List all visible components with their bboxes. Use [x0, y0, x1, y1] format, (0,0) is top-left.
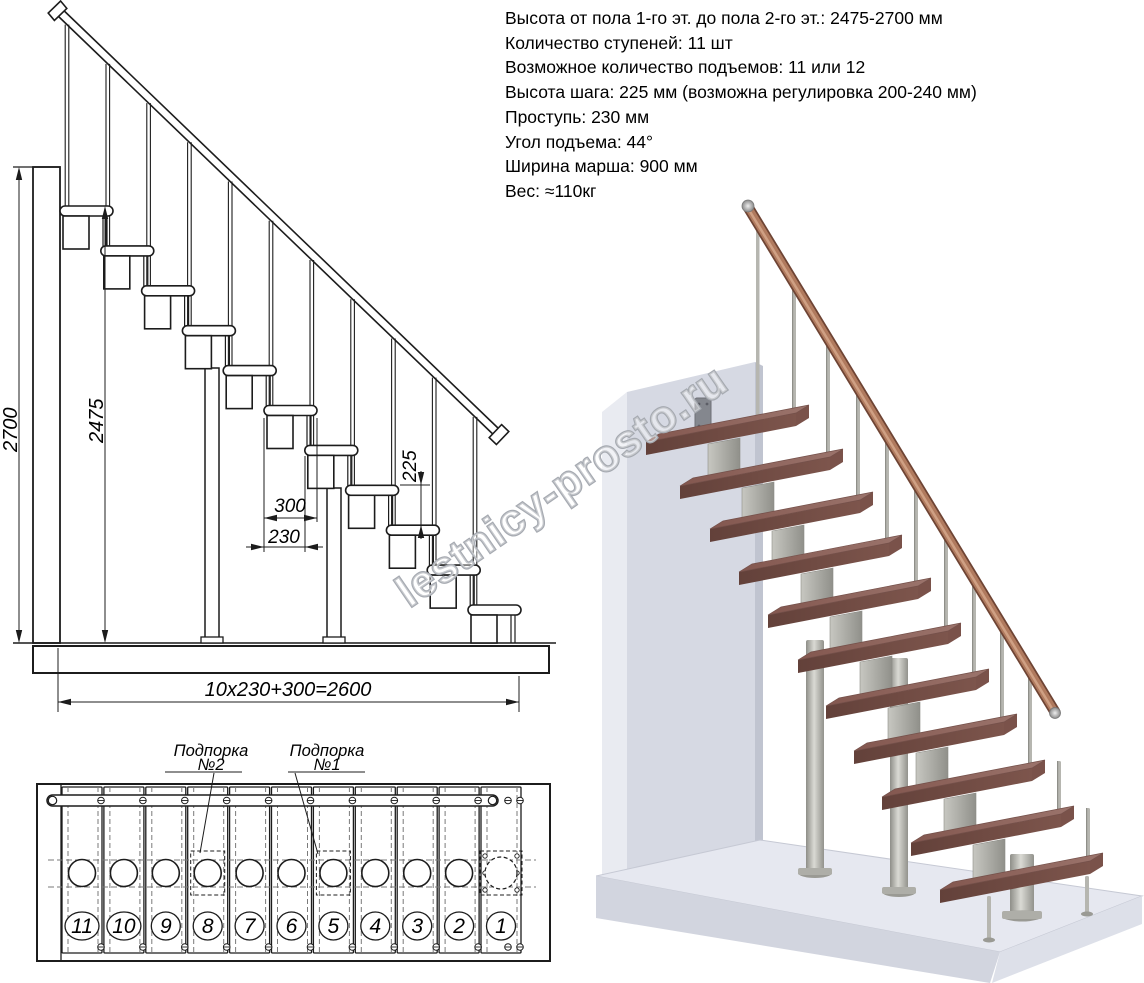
plan-step-number: 4: [369, 915, 381, 938]
plan-drawing: Подпорка №2 Подпорка №1 1110987654321: [0, 730, 580, 983]
plan-step-number: 8: [202, 915, 214, 938]
staircase-3d-render: [596, 190, 1144, 983]
plan-step-numbers: 1110987654321: [65, 912, 516, 940]
dim-tread-depth: 300: [274, 496, 306, 517]
plan-step-number: 7: [244, 915, 257, 938]
spec-line-step-height: Высота шага: 225 мм (возможна регулировк…: [505, 80, 1135, 105]
plan-step-number: 1: [495, 915, 507, 938]
page-canvas: 2700 2475 300 230 225 10x230+300=2600 Вы…: [0, 0, 1144, 983]
spec-line-angle: Угол подъема: 44°: [505, 130, 1135, 155]
elevation-drawing: 2700 2475 300 230 225 10x230+300=2600: [0, 0, 580, 745]
spec-line-rise-count: Возможное количество подъемов: 11 или 12: [505, 55, 1135, 80]
plan-step-number: 10: [112, 915, 136, 938]
plan-step-number: 3: [411, 915, 423, 938]
render3d-geometry: [596, 200, 1142, 983]
elevation-geometry: [13, 1, 556, 712]
spec-line-tread: Проступь: 230 мм: [505, 105, 1135, 130]
plan-step-number: 2: [452, 915, 465, 938]
dim-flight-height: 2475: [86, 398, 108, 444]
plan-step-number: 9: [160, 915, 172, 938]
plan-step-number: 5: [328, 915, 340, 938]
specs-block: Высота от пола 1-го эт. до пола 2-го эт.…: [505, 6, 1135, 204]
dim-step-run: 230: [267, 527, 300, 548]
support2-label-line2: №2: [197, 756, 224, 774]
dim-total-height: 2700: [0, 408, 22, 454]
spec-line-step-count: Количество ступеней: 11 шт: [505, 31, 1135, 56]
dim-step-rise: 225: [400, 450, 421, 483]
plan-step-number: 6: [286, 915, 298, 938]
spec-line-height-range: Высота от пола 1-го эт. до пола 2-го эт.…: [505, 6, 1135, 31]
plan-step-number: 11: [71, 915, 93, 938]
dim-total-run: 10x230+300=2600: [205, 679, 372, 701]
spec-line-width: Ширина марша: 900 мм: [505, 154, 1135, 179]
support1-label-line2: №1: [313, 756, 340, 774]
